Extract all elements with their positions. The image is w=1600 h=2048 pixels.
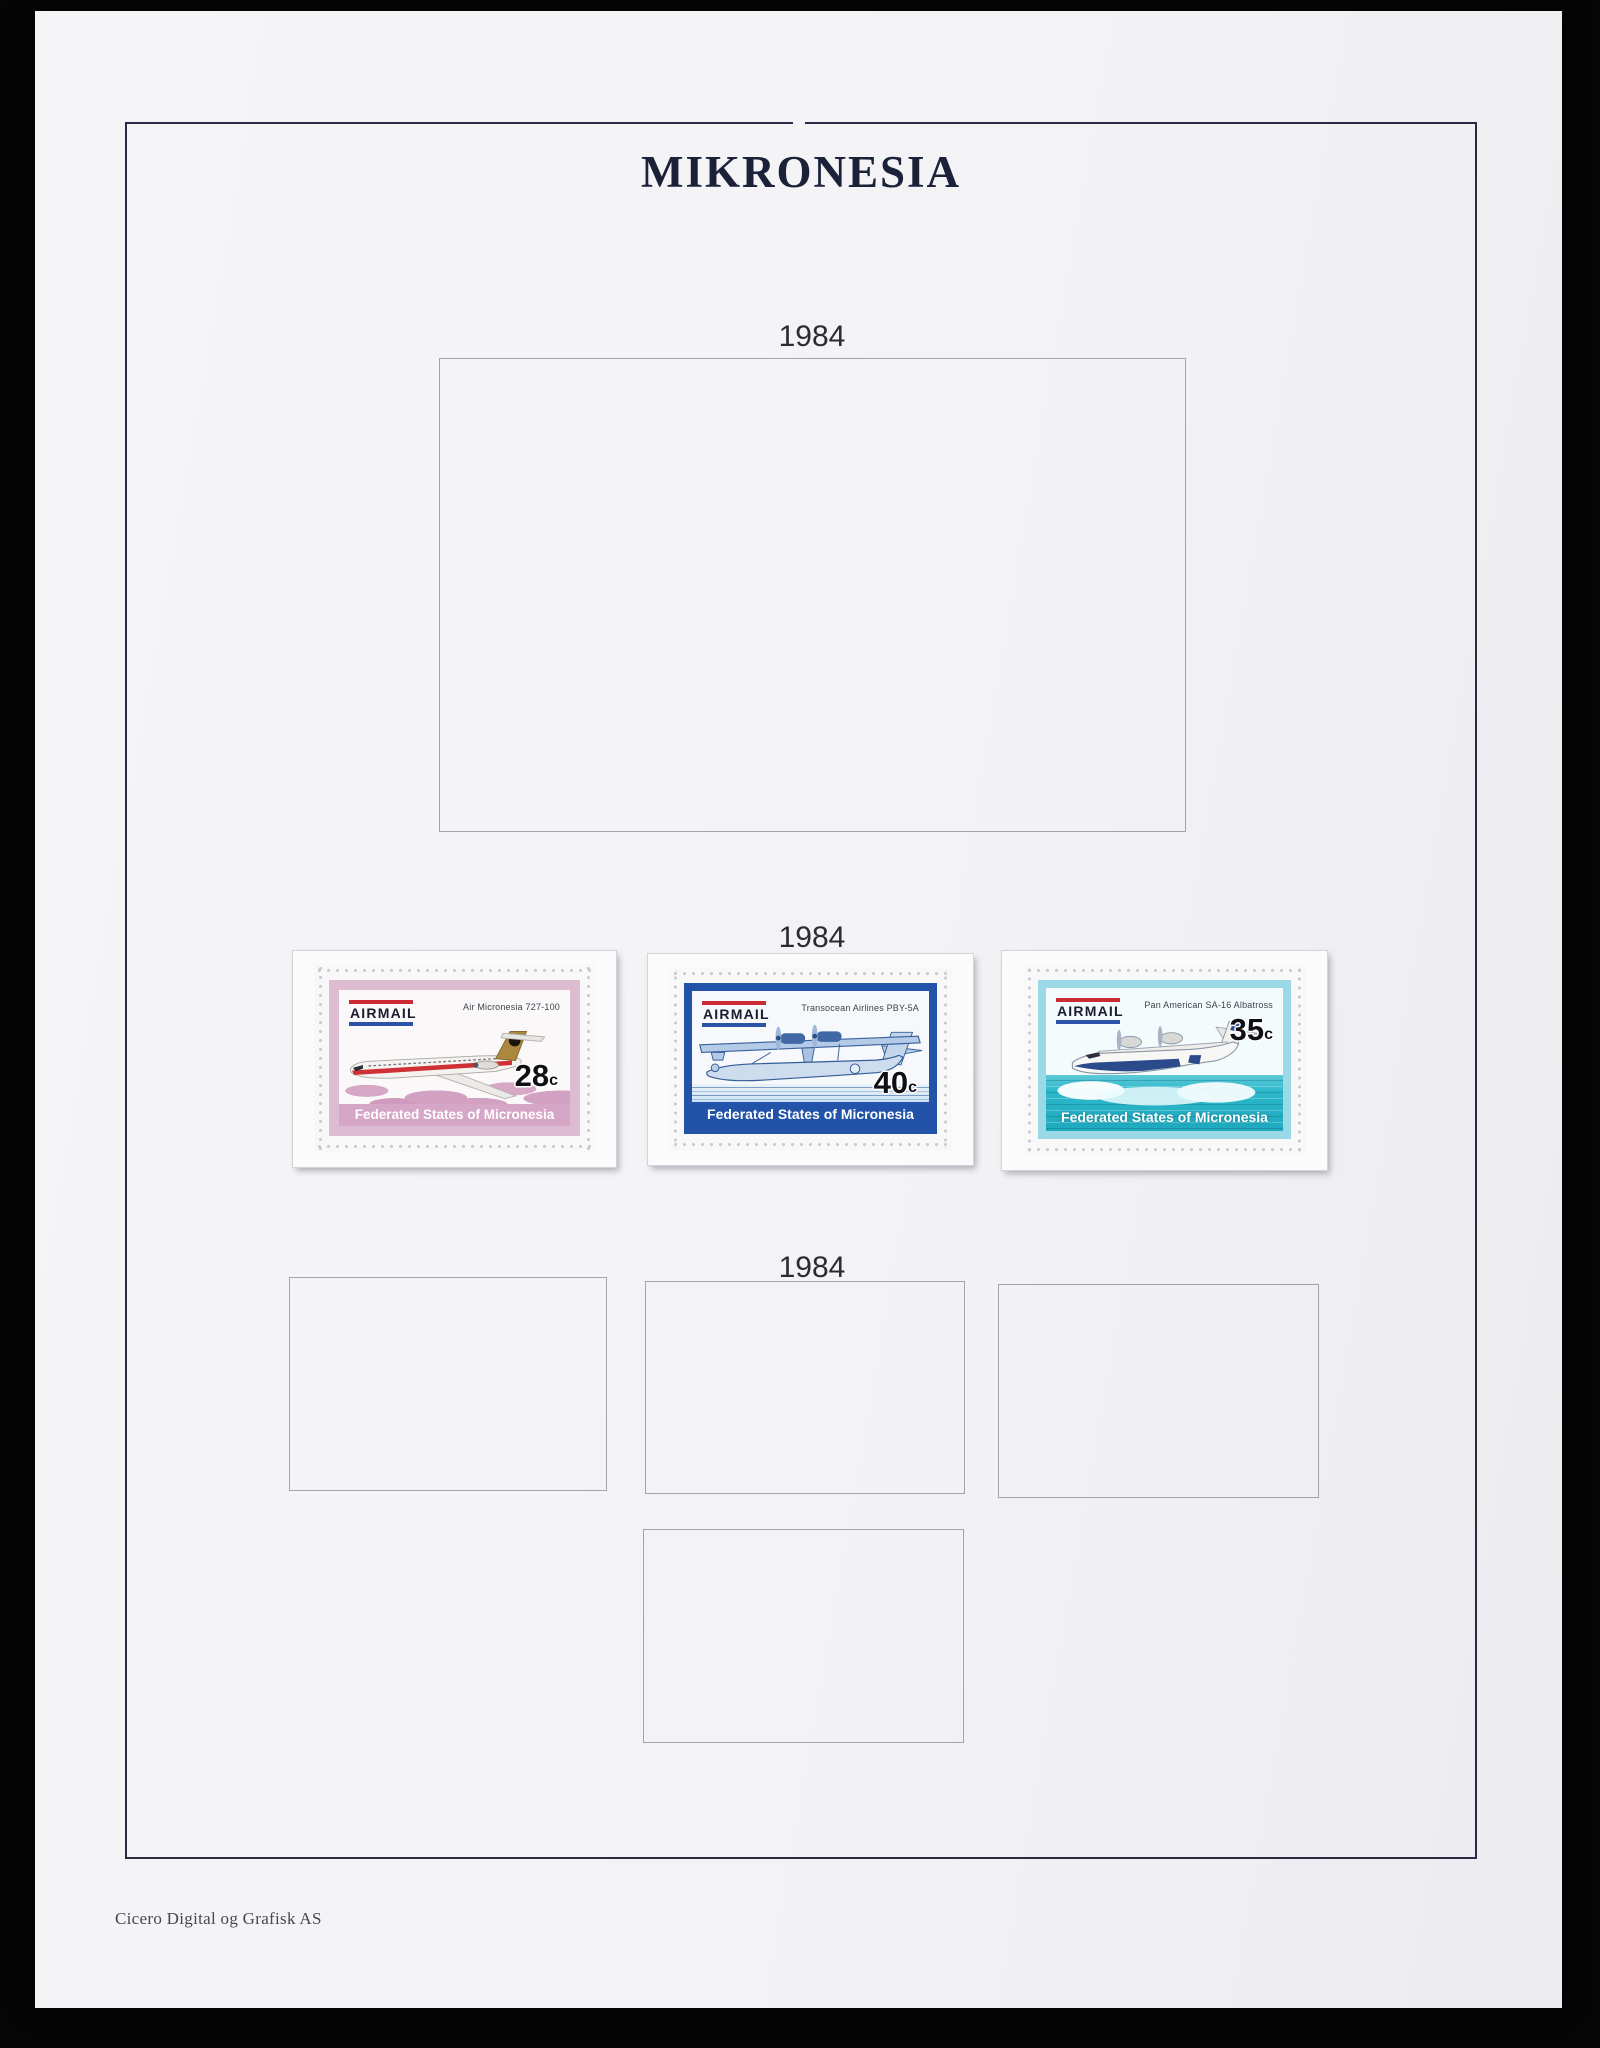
stamp-caption: Transocean Airlines PBY-5A (801, 1003, 919, 1013)
stamp-placeholder-large (439, 358, 1186, 832)
perforation-edge (671, 970, 680, 1148)
airmail-logo: AIRMAIL (702, 1001, 770, 1027)
stamp-caption: Pan American SA-16 Albatross (1144, 1000, 1273, 1010)
page-title: MIKRONESIA (127, 146, 1475, 198)
year-label-1: 1984 (127, 320, 1475, 354)
stamp-35c: AIRMAIL Pan American SA-16 Albatross (1023, 964, 1306, 1156)
perforation-edge (316, 967, 325, 1150)
frame-gap (793, 120, 805, 126)
stamp-40c: AIRMAIL Transocean Airlines PBY-5A (669, 967, 952, 1151)
perforation-edge (317, 1142, 592, 1151)
perforation-edge (584, 967, 593, 1150)
stamp-mount-40c: AIRMAIL Transocean Airlines PBY-5A (648, 954, 973, 1165)
airmail-label: AIRMAIL (702, 1005, 770, 1023)
blue-bar (702, 1023, 766, 1027)
stamp-caption: Air Micronesia 727-100 (463, 1002, 560, 1012)
album-page: MIKRONESIA 1984 1984 AIRMAIL Air Microne… (35, 11, 1562, 2008)
perforation-edge (672, 1140, 949, 1149)
stamp-mount-35c: AIRMAIL Pan American SA-16 Albatross (1002, 951, 1327, 1170)
denomination-28c: 28c (515, 1060, 558, 1091)
stamp-design-40c: AIRMAIL Transocean Airlines PBY-5A (684, 983, 937, 1134)
country-band: Federated States of Micronesia (692, 1102, 929, 1126)
stamp-mount-28c: AIRMAIL Air Micronesia 727-100 (293, 951, 616, 1167)
perforation-edge (672, 969, 949, 978)
airmail-logo: AIRMAIL (1056, 998, 1124, 1024)
country-band: Federated States of Micronesia (339, 1104, 570, 1126)
stamp-placeholder-1 (289, 1277, 607, 1491)
page-border-frame: MIKRONESIA 1984 1984 AIRMAIL Air Microne… (125, 122, 1477, 1859)
publisher-credit: Cicero Digital og Grafisk AS (115, 1909, 322, 1929)
stamp-28c: AIRMAIL Air Micronesia 727-100 (314, 964, 595, 1153)
perforation-edge (1025, 967, 1034, 1153)
perforation-edge (1026, 966, 1303, 975)
perforation-edge (1295, 967, 1304, 1153)
stamp-design-28c: AIRMAIL Air Micronesia 727-100 (329, 980, 580, 1136)
stamp-placeholder-2 (645, 1281, 965, 1494)
airmail-label: AIRMAIL (349, 1004, 417, 1022)
stamp-placeholder-4 (643, 1529, 964, 1743)
stamp-placeholder-3 (998, 1284, 1319, 1498)
airmail-logo: AIRMAIL (349, 1000, 417, 1026)
denomination-35c: 35c (1230, 1014, 1273, 1045)
blue-bar (349, 1022, 413, 1026)
perforation-edge (941, 970, 950, 1148)
airmail-label: AIRMAIL (1056, 1002, 1124, 1020)
stamp-design-35c: AIRMAIL Pan American SA-16 Albatross (1038, 980, 1291, 1139)
perforation-edge (1026, 1145, 1303, 1154)
perforation-edge (317, 966, 592, 975)
year-label-2: 1984 (127, 921, 1475, 955)
country-band: Federated States of Micronesia (1046, 1107, 1283, 1127)
blue-bar (1056, 1020, 1120, 1024)
denomination-40c: 40c (874, 1067, 917, 1098)
